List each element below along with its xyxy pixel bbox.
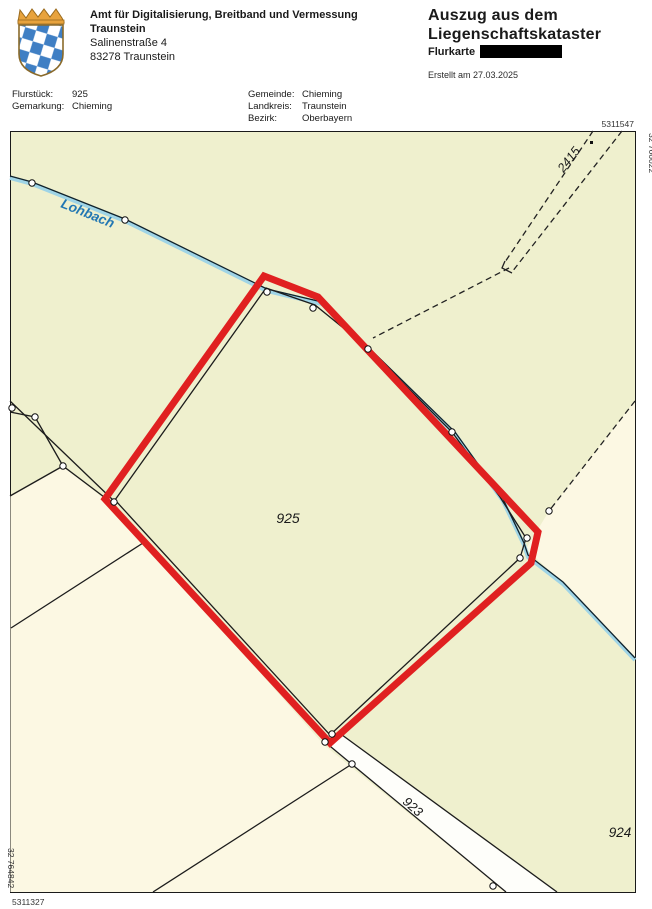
info-row-gemarkung: Gemarkung: Chieming [12, 101, 112, 113]
survey-stone-marker [590, 141, 593, 144]
parcel-925-label: 925 [276, 510, 300, 526]
parcel-924-label: 924 [609, 825, 632, 840]
office-name-line1: Amt für Digitalisierung, Breitband und V… [90, 8, 358, 22]
cadastral-extract-page: Lohbach 925 923 924 2415 5311547 32 7660… [0, 0, 652, 909]
office-street: Salinenstraße 4 [90, 36, 358, 50]
coord-right-easting: 32 766022 [647, 133, 652, 173]
created-date: Erstellt am 27.03.2025 [428, 70, 648, 80]
info-value: Traunstein [302, 101, 347, 113]
info-value: 925 [72, 89, 88, 101]
office-name-line2: Traunstein [90, 22, 358, 36]
coord-top-right-northing: 5311547 [602, 119, 635, 129]
info-row-gemeinde: Gemeinde: Chieming [248, 89, 352, 101]
flurkarte-row: Flurkarte [428, 45, 648, 58]
document-title-block: Auszug aus dem Liegenschaftskataster Flu… [428, 6, 648, 80]
info-row-bezirk: Bezirk: Oberbayern [248, 113, 352, 125]
document-title-line1: Auszug aus dem [428, 6, 648, 25]
info-label: Gemarkung: [12, 101, 72, 113]
issuing-office-block: Amt für Digitalisierung, Breitband und V… [90, 8, 358, 64]
coord-bottom-left-northing: 5311327 [12, 897, 45, 907]
parcel-info-left: Flurstück: 925 Gemarkung: Chieming [12, 89, 112, 113]
info-label: Gemeinde: [248, 89, 302, 101]
info-value: Chieming [72, 101, 112, 113]
info-label: Landkreis: [248, 101, 302, 113]
flurkarte-redacted-value [480, 45, 562, 58]
shield-icon [19, 25, 63, 76]
info-row-flurstueck: Flurstück: 925 [12, 89, 112, 101]
flurkarte-label: Flurkarte [428, 46, 475, 58]
info-row-landkreis: Landkreis: Traunstein [248, 101, 352, 113]
parcel-info-right: Gemeinde: Chieming Landkreis: Traunstein… [248, 89, 352, 125]
info-value: Oberbayern [302, 113, 352, 125]
info-value: Chieming [302, 89, 342, 101]
info-label: Flurstück: [12, 89, 72, 101]
info-label: Bezirk: [248, 113, 302, 125]
coord-left-easting: 32 764842 [6, 848, 16, 888]
cadastral-map: Lohbach 925 923 924 2415 5311547 32 7660… [0, 0, 652, 909]
bavaria-coat-of-arms [12, 6, 70, 78]
office-city: 83278 Traunstein [90, 50, 358, 64]
document-title-line2: Liegenschaftskataster [428, 25, 648, 44]
